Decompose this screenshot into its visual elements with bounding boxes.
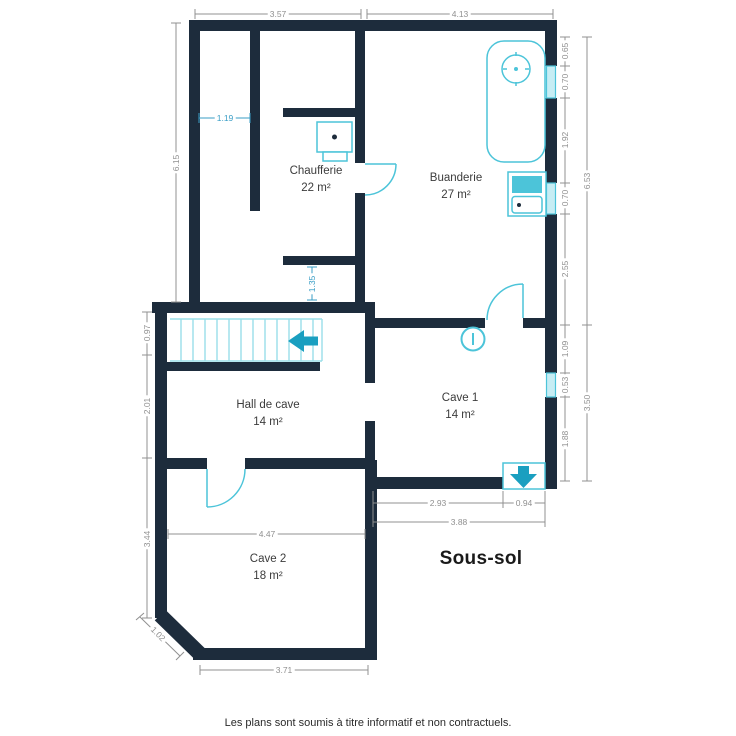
room-label-chaufferie: Chaufferie 22 m²: [290, 163, 343, 198]
dim-label: 3.71: [274, 666, 295, 675]
dim-label: 6.15: [172, 153, 181, 174]
dim-label: 1.35: [308, 274, 317, 295]
plan-title: Sous-sol: [440, 548, 523, 570]
dim-label: 0.70: [561, 188, 570, 209]
dim-label: 0.97: [143, 323, 152, 344]
dim-label: 4.47: [257, 530, 278, 539]
dim-label: 4.13: [450, 10, 471, 19]
room-label-hall-de-cave: Hall de cave 14 m²: [236, 397, 299, 432]
dim-label: 3.44: [143, 529, 152, 550]
dim-label: 0.94: [514, 499, 535, 508]
boiler: [317, 122, 352, 161]
door-chaufferie-icon: [365, 164, 396, 195]
room-name: Chaufferie: [290, 163, 343, 180]
laundry-sink: [508, 172, 546, 216]
room-area: 18 m²: [250, 568, 286, 585]
room-label-cave-1: Cave 1 14 m²: [442, 390, 478, 425]
dim-label: 1.88: [561, 429, 570, 450]
dim-label: 2.55: [561, 259, 570, 280]
room-area: 14 m²: [236, 414, 299, 431]
room-name: Cave 1: [442, 390, 478, 407]
dim-label: 2.93: [428, 499, 449, 508]
disclaimer-text: Les plans sont soumis à titre informatif…: [225, 717, 512, 729]
room-label-buanderie: Buanderie 27 m²: [430, 170, 482, 205]
dim-label: 3.57: [268, 10, 289, 19]
room-area: 27 m²: [430, 187, 482, 204]
staircase: [170, 318, 323, 362]
dim-label: 3.88: [449, 518, 470, 527]
window-icon: [547, 183, 556, 214]
water-heater: [487, 41, 545, 162]
room-name: Buanderie: [430, 170, 482, 187]
door-cave1-icon: [487, 284, 523, 320]
dim-label: 3.50: [583, 393, 592, 414]
dim-label: 1.92: [561, 130, 570, 151]
floor-plan: 3.57 4.13 6.15 0.97 2.01 3.44 0.65 0.70 …: [0, 0, 736, 736]
stairs-down-hatch: [503, 463, 545, 489]
door-cave2-icon: [207, 469, 245, 507]
room-name: Hall de cave: [236, 397, 299, 414]
dim-label: 1.19: [215, 114, 236, 123]
window-icon: [547, 66, 556, 98]
dim-label: 0.65: [561, 41, 570, 62]
dim-label: 2.01: [143, 396, 152, 417]
dim-label: 0.53: [561, 375, 570, 396]
info-symbol: [462, 328, 485, 351]
dim-label: 0.70: [561, 72, 570, 93]
room-label-cave-2: Cave 2 18 m²: [250, 551, 286, 586]
room-area: 22 m²: [290, 180, 343, 197]
room-name: Cave 2: [250, 551, 286, 568]
room-area: 14 m²: [442, 407, 478, 424]
floor-plan-drawing: [0, 0, 736, 736]
window-icon: [547, 373, 556, 397]
dim-label: 6.53: [583, 171, 592, 192]
dim-label: 1.09: [561, 339, 570, 360]
